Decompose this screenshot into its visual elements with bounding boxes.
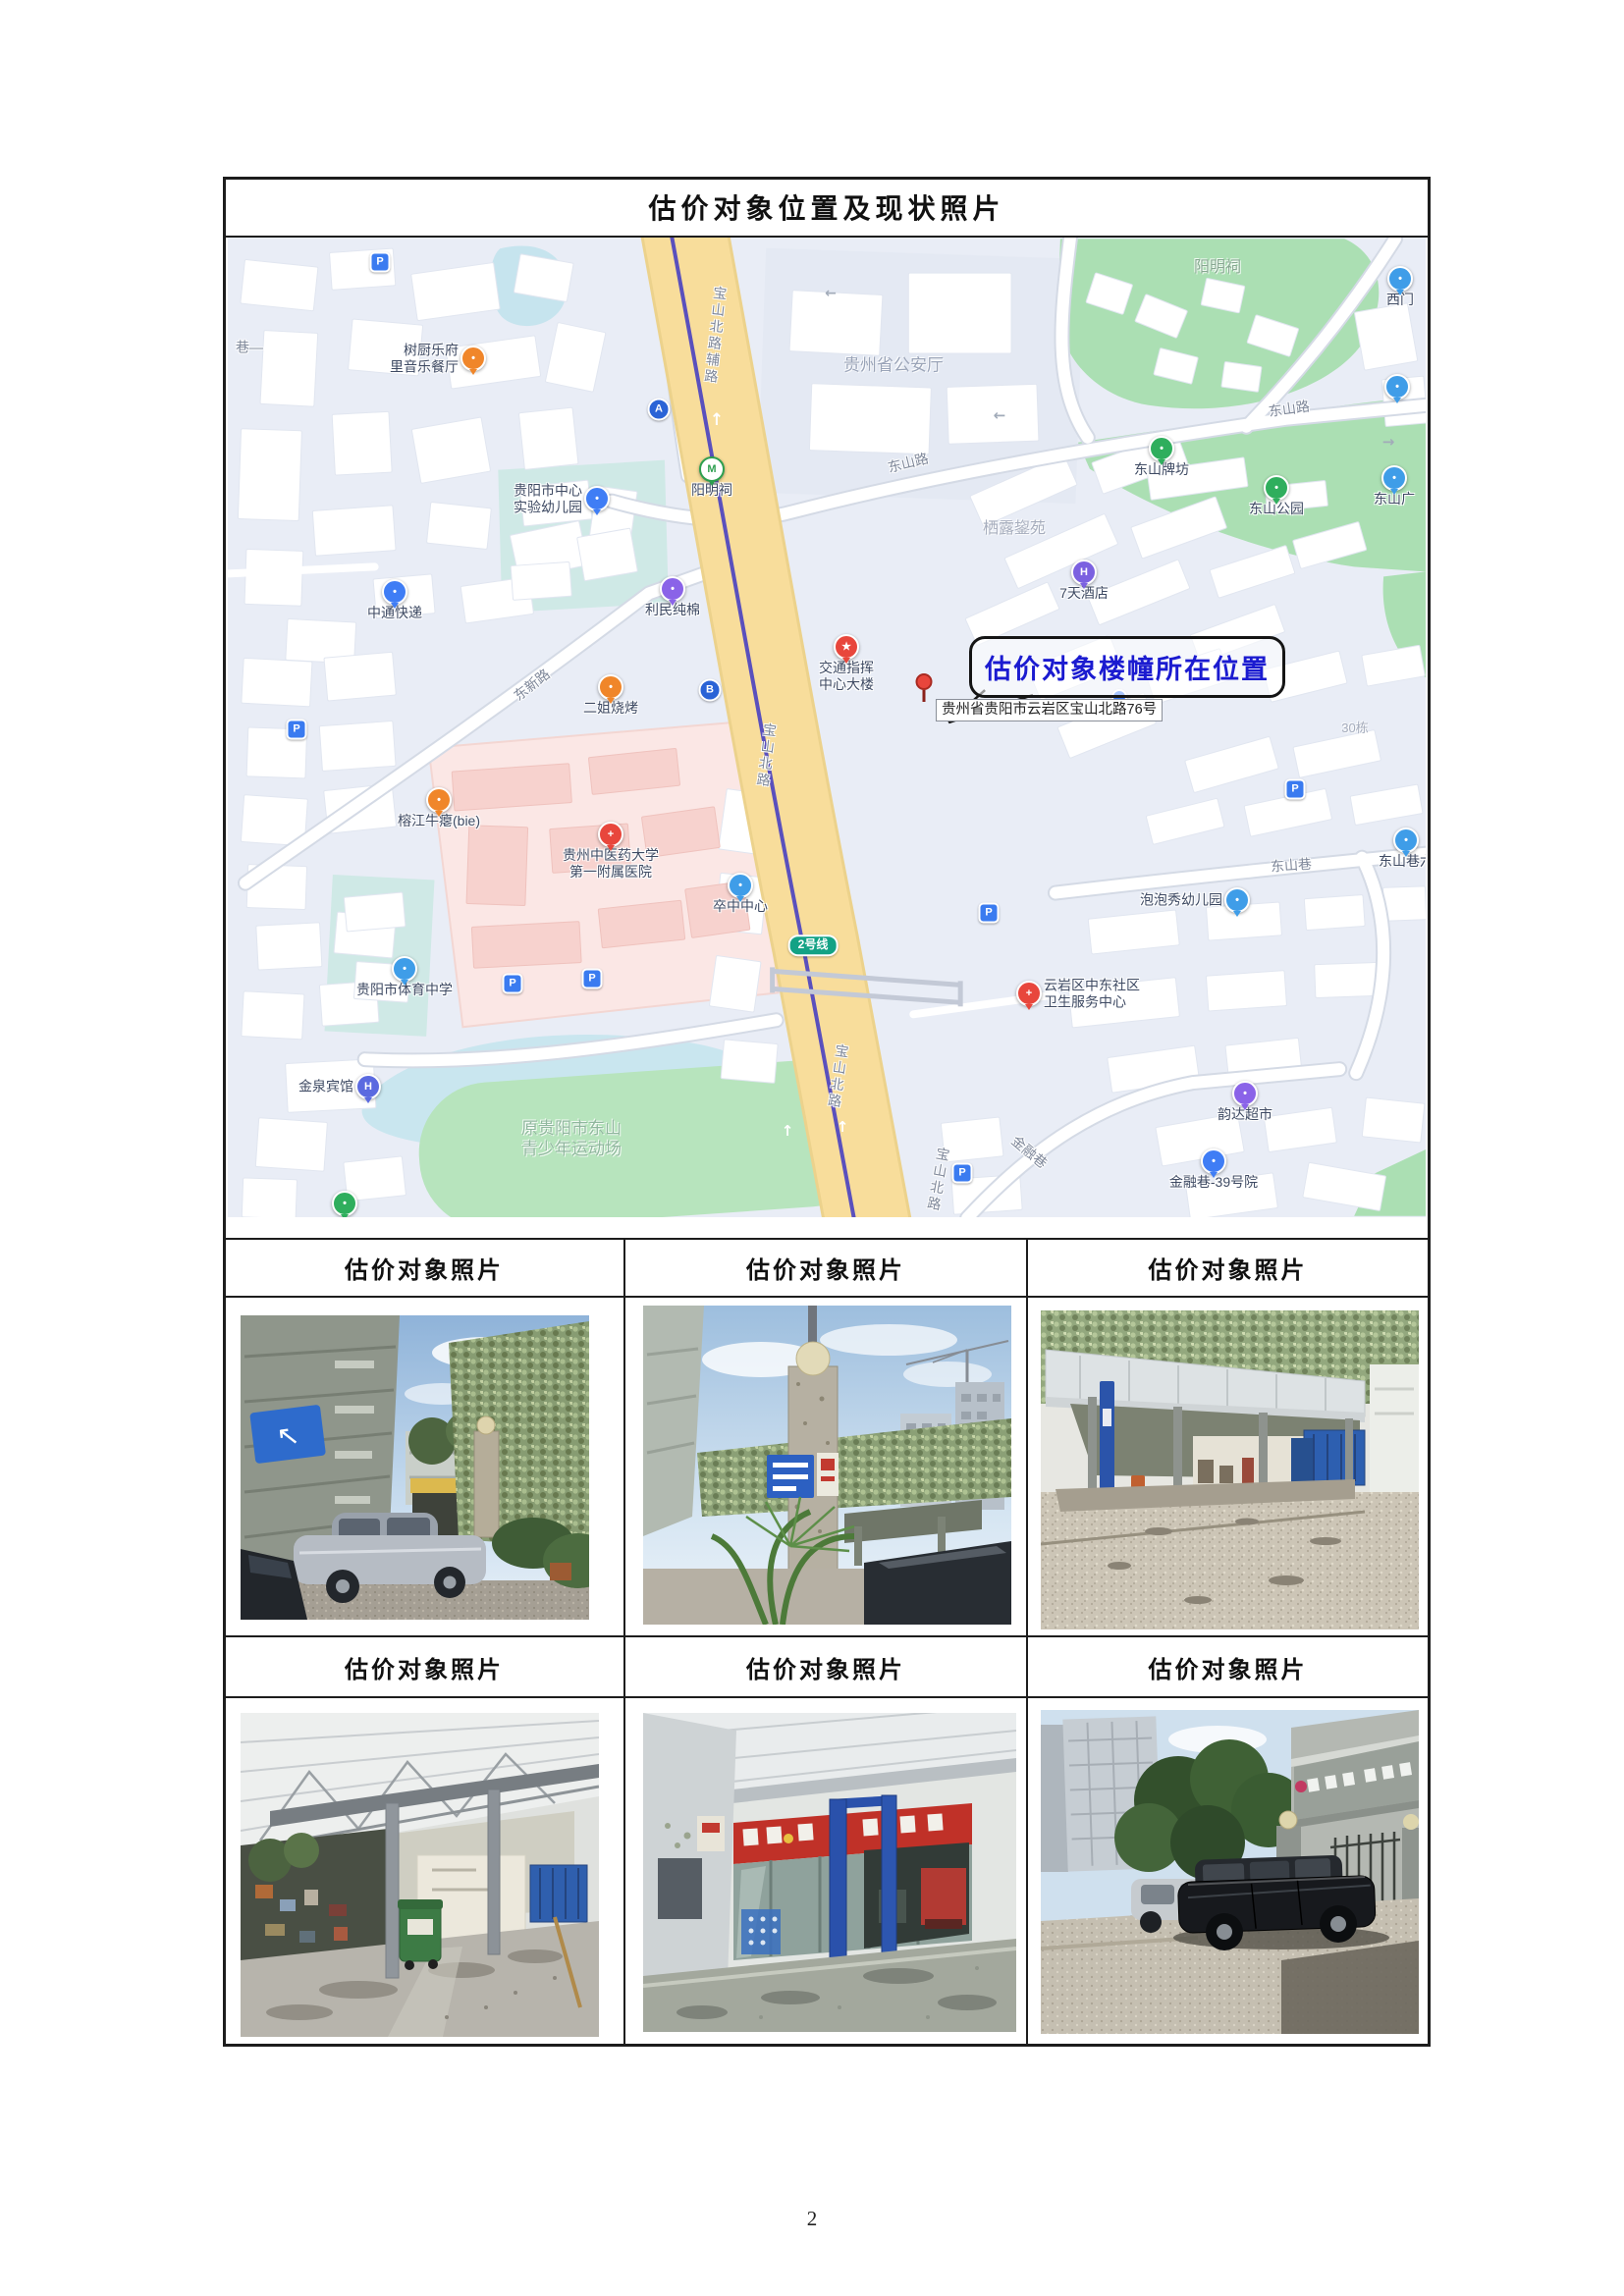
page-number: 2	[0, 2207, 1624, 2231]
road-label: 东山路	[1268, 399, 1311, 419]
poi-glyph-icon: •	[403, 964, 406, 975]
metro-line-badge: 2号线	[788, 934, 839, 956]
map-poi-pin: •	[1224, 887, 1250, 913]
parking-icon: P	[582, 969, 603, 989]
poi-glyph-icon: +	[1026, 988, 1032, 999]
photo-header-cell: 估价对象照片	[1028, 1639, 1428, 1695]
photo-1-illustration: ↖	[241, 1315, 589, 1620]
road-label: 东新路	[512, 667, 554, 704]
poi-glyph-icon: •	[1398, 274, 1402, 285]
poi-glyph-icon: H	[364, 1082, 372, 1093]
map-poi-pin: •	[332, 1191, 357, 1216]
road-label: 宝山北路	[826, 1042, 850, 1110]
map-poi-pin: •	[426, 787, 452, 813]
photo-carport-yard	[1041, 1310, 1419, 1629]
map-poi-pin: •	[728, 873, 753, 898]
photo-5-illustration	[643, 1713, 1016, 2032]
road-arrow-icon: →	[1382, 433, 1395, 451]
poi-glyph-icon: H	[1080, 567, 1088, 578]
road-label: 宝山北路辅路	[702, 285, 728, 386]
map-poi-pin: •	[382, 579, 407, 605]
road-label: 东山路	[887, 451, 930, 475]
parking-icon: P	[287, 720, 307, 740]
map-poi-pin: •	[660, 576, 685, 602]
area-label: 阳明祠	[1194, 258, 1241, 278]
map-overlay: 宝山北路辅路宝山北路宝山北路宝山北路东山路东山路东新路东山巷金融巷巷—贵州省公安…	[228, 238, 1426, 1217]
photo-6-illustration	[1041, 1710, 1419, 2034]
road-label: 宝山北路	[754, 721, 778, 789]
map-poi-pin: •	[1149, 436, 1174, 461]
road-arrow-icon: ↑	[837, 1118, 849, 1136]
photo-suv-entrance	[1041, 1710, 1419, 2034]
page-title: 估价对象位置及现状照片	[223, 179, 1431, 236]
area-label: 30栋	[1341, 721, 1368, 736]
photo-gate-pillar	[643, 1306, 1011, 1625]
map-poi-label: 树厨乐府里音乐餐厅	[390, 342, 459, 374]
road-label: 巷—	[236, 340, 263, 354]
callout-text: 估价对象楼幢所在位置	[985, 648, 1270, 686]
parking-icon: P	[979, 903, 1000, 924]
map-poi-pin: •	[1393, 828, 1419, 853]
poi-glyph-icon: ★	[841, 642, 851, 653]
area-label: 原贵阳市东山青少年运动场	[521, 1118, 622, 1160]
poi-glyph-icon: •	[1395, 382, 1399, 393]
map-poi-pin: •	[392, 956, 417, 982]
road-arrow-icon: ↑	[710, 410, 724, 430]
photo-street-sedan: ↖	[241, 1315, 589, 1620]
map-poi-pin: •	[1201, 1148, 1226, 1174]
poi-glyph-icon: •	[1235, 895, 1239, 906]
photo-header-cell: 估价对象照片	[625, 1240, 1026, 1296]
poi-glyph-icon: •	[1392, 473, 1396, 484]
map-poi-label: 泡泡秀幼儿园	[1140, 892, 1222, 909]
parking-icon: P	[952, 1163, 973, 1184]
poi-glyph-icon: +	[608, 829, 614, 840]
poi-glyph-icon: •	[671, 584, 675, 595]
poi-glyph-icon: •	[437, 795, 441, 806]
poi-glyph-icon: •	[1404, 835, 1408, 846]
map-poi-pin: •	[598, 674, 623, 700]
photo-header-cell: 估价对象照片	[225, 1240, 623, 1296]
poi-glyph-icon: •	[1160, 444, 1164, 454]
road-arrow-icon: ←	[825, 286, 837, 301]
poi-glyph-icon: •	[343, 1199, 347, 1209]
road-arrow-icon: ←	[994, 406, 1006, 424]
address-label: 贵州省贵阳市云岩区宝山北路76号	[936, 699, 1163, 721]
photo-2-illustration	[643, 1306, 1011, 1625]
poi-glyph-icon: •	[471, 353, 475, 364]
map-poi-label: 云岩区中东社区卫生服务中心	[1044, 977, 1140, 1009]
map-poi-pin: H	[1071, 560, 1097, 585]
map-poi-pin: •	[1264, 475, 1289, 501]
map-poi-pin: •	[1384, 374, 1410, 400]
map-poi-pin: •	[460, 346, 486, 371]
area-label: 贵州省公安厅	[843, 354, 944, 375]
metro-entrance-icon: A	[648, 399, 671, 421]
poi-glyph-icon: •	[1212, 1156, 1216, 1167]
document-page: 估价对象位置及现状照片	[0, 0, 1624, 2296]
poi-glyph-icon: •	[1274, 483, 1278, 494]
photo-3-illustration	[1041, 1310, 1419, 1629]
poi-glyph-icon: •	[609, 682, 613, 693]
photo-header-cell: 估价对象照片	[1028, 1240, 1428, 1296]
map-poi-pin: +	[1016, 981, 1042, 1006]
road-label: 宝山北路	[925, 1146, 951, 1214]
photo-header-cell: 估价对象照片	[625, 1639, 1026, 1695]
map-poi-label: 贵阳市中心实验幼儿园	[514, 482, 582, 514]
photo-4-illustration	[241, 1713, 599, 2037]
map-poi-pin: •	[1232, 1081, 1258, 1106]
poi-glyph-icon: M	[707, 464, 716, 475]
parking-icon: P	[370, 252, 391, 273]
road-label: 东山巷	[1271, 857, 1313, 875]
parking-icon: P	[1285, 779, 1306, 800]
road-label: 金融巷	[1008, 1134, 1050, 1172]
map-poi-pin: •	[1381, 465, 1407, 491]
map-poi-pin: ★	[834, 634, 859, 660]
poi-glyph-icon: •	[1243, 1089, 1247, 1099]
map-poi-pin: H	[355, 1074, 381, 1099]
poi-glyph-icon: •	[595, 494, 599, 505]
svg-text:↖: ↖	[275, 1418, 301, 1454]
photo-header-cell: 估价对象照片	[225, 1639, 623, 1695]
poi-glyph-icon: •	[738, 881, 742, 891]
poi-glyph-icon: •	[393, 587, 397, 598]
photo-shopfront-lift	[643, 1713, 1016, 2032]
subject-location-callout: 估价对象楼幢所在位置	[969, 636, 1285, 698]
road-arrow-icon: ↑	[782, 1122, 794, 1140]
map-poi-pin: M	[699, 456, 725, 482]
parking-icon: P	[503, 974, 523, 994]
map-poi-label: 金泉宾馆	[298, 1079, 353, 1095]
metro-entrance-icon: B	[699, 679, 722, 702]
destination-pin	[916, 673, 933, 702]
map-poi-pin: •	[584, 486, 610, 511]
photo-garage-interior	[241, 1713, 599, 2037]
location-map-screenshot: 宝山北路辅路宝山北路宝山北路宝山北路东山路东山路东新路东山巷金融巷巷—贵州省公安…	[228, 238, 1426, 1217]
map-poi-pin: •	[1387, 266, 1413, 292]
area-label: 栖露鋆苑	[983, 519, 1046, 539]
map-poi-pin: +	[598, 822, 623, 847]
